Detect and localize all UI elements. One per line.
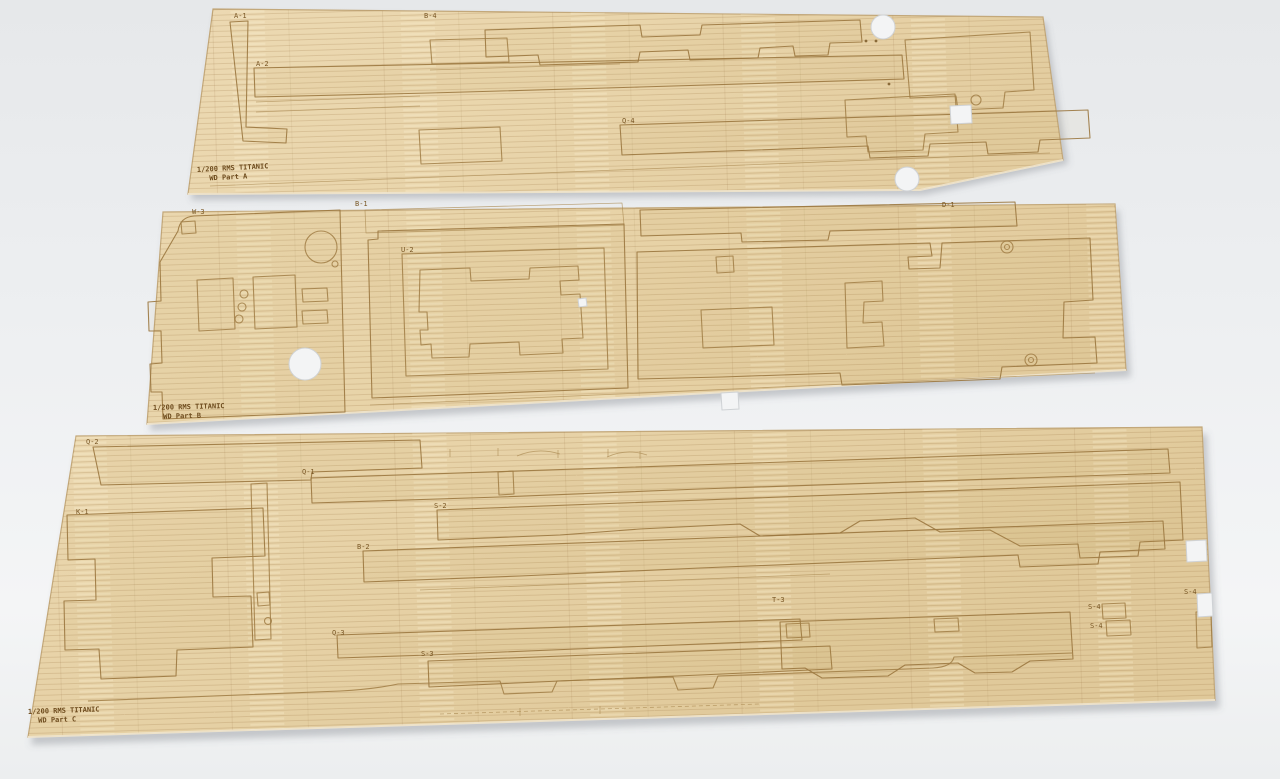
deck-sheet-b: W-3 B-1 U-2 D-1 1/200 RMS TITANIC WD Par… bbox=[147, 200, 1126, 424]
cut-hole-square bbox=[578, 298, 587, 307]
cut-hole-circle bbox=[895, 167, 919, 191]
deck-sheet-c: Q-2 K-1 Q-1 S-2 B-2 Q-3 S-3 T-3 S-4 S-4 … bbox=[28, 427, 1215, 737]
part-label: B-4 bbox=[424, 12, 437, 20]
part-label: T-3 bbox=[772, 596, 785, 604]
deck-sheet-a: A-1 A-2 B-4 Q-4 1/200 RMS TITANIC WD Par… bbox=[188, 9, 1090, 194]
part-label: Q-1 bbox=[302, 468, 315, 476]
part-label: B-2 bbox=[357, 543, 370, 551]
part-label: B-1 bbox=[355, 200, 368, 208]
part-label: S-4 bbox=[1088, 603, 1101, 611]
photo-canvas: A-1 A-2 B-4 Q-4 1/200 RMS TITANIC WD Par… bbox=[0, 0, 1280, 779]
cut-hole-rect bbox=[1197, 593, 1213, 617]
part-label: D-1 bbox=[942, 201, 955, 209]
scale-inscription-line2: WD Part C bbox=[38, 715, 76, 724]
cut-hole-circle bbox=[871, 15, 895, 39]
etched-dot bbox=[875, 40, 878, 43]
cut-hole-circle bbox=[289, 348, 321, 380]
product-photo: A-1 A-2 B-4 Q-4 1/200 RMS TITANIC WD Par… bbox=[0, 0, 1280, 779]
etched-dot bbox=[888, 83, 891, 86]
cut-hole-rect bbox=[1186, 540, 1207, 562]
part-label: Q-2 bbox=[86, 438, 99, 446]
scale-inscription-line2: WD Part B bbox=[163, 412, 201, 421]
part-label: Q-3 bbox=[332, 629, 345, 637]
part-label: S-4 bbox=[1184, 588, 1197, 596]
part-label: A-2 bbox=[256, 60, 269, 68]
part-label: Q-4 bbox=[622, 117, 635, 125]
part-label: S-2 bbox=[434, 502, 447, 510]
cut-hole-square bbox=[950, 105, 972, 124]
cut-hole-square bbox=[721, 392, 739, 410]
part-label: S-3 bbox=[421, 650, 434, 658]
etched-part-outline bbox=[637, 238, 1097, 385]
etched-part-outline bbox=[148, 210, 345, 419]
part-label: U-2 bbox=[401, 246, 414, 254]
part-label: S-4 bbox=[1090, 622, 1103, 630]
part-label: A-1 bbox=[234, 12, 247, 20]
part-label: K-1 bbox=[76, 508, 89, 516]
part-label: W-3 bbox=[192, 208, 205, 216]
etched-dot bbox=[865, 40, 868, 43]
